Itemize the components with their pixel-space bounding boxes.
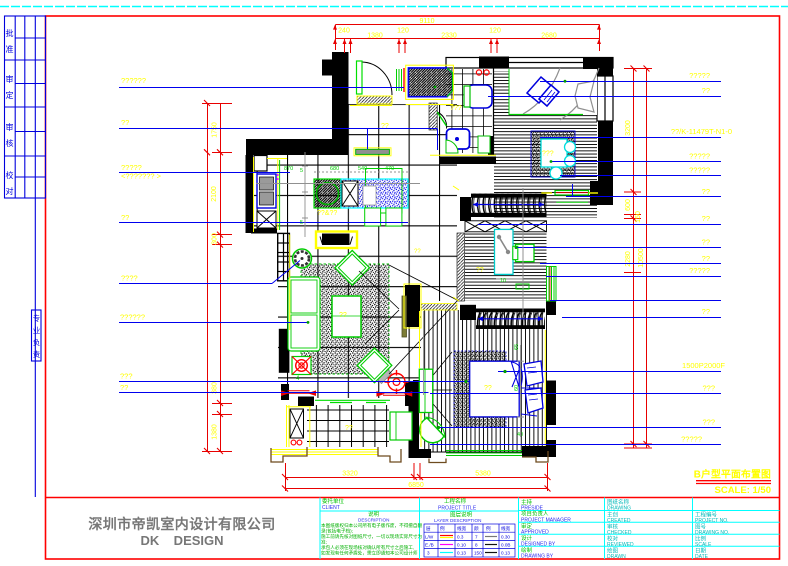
svg-text:E./B: E./B [425,543,434,548]
svg-text:???: ??? [450,105,462,112]
svg-text:5380: 5380 [475,471,491,478]
svg-text:2100: 2100 [211,186,218,202]
svg-text:CHECKED: CHECKED [607,530,632,536]
svg-text:0.30: 0.30 [501,535,510,540]
svg-text:委托单位: 委托单位 [322,497,345,505]
svg-text:例: 例 [486,525,491,532]
svg-text:准: 准 [6,44,14,54]
svg-text:5: 5 [300,168,303,174]
svg-text:540: 540 [358,166,367,172]
svg-text:10500: 10500 [638,248,645,268]
svg-text:??: ?? [702,86,710,95]
svg-text:1750: 1750 [212,122,219,138]
svg-text:??: ?? [121,213,129,222]
svg-text:680: 680 [330,166,339,172]
svg-text:??: ?? [414,249,421,255]
svg-text:业: 业 [33,325,41,335]
svg-text:DESIGNED BY: DESIGNED BY [521,542,556,548]
svg-text:定: 定 [6,90,14,100]
svg-text:例: 例 [440,525,445,532]
svg-text:PROJECT MANAGER: PROJECT MANAGER [521,518,571,524]
svg-text:120: 120 [397,28,409,35]
svg-text:0.13: 0.13 [457,551,466,556]
svg-text:8: 8 [475,543,478,548]
svg-text:对: 对 [6,186,14,196]
svg-text:DRAWING BY: DRAWING BY [521,554,554,560]
svg-text:??: ?? [476,267,484,274]
svg-text:6850: 6850 [408,482,424,489]
svg-text:240: 240 [338,28,350,35]
svg-text:??: ?? [702,238,710,247]
svg-text:??: ?? [120,383,128,392]
svg-text:???: ??? [120,372,133,381]
svg-text:??: ?? [702,214,710,223]
svg-text:65: 65 [514,344,520,350]
svg-text:150: 150 [635,211,642,223]
svg-text:LAYER DESCRIPTION: LAYER DESCRIPTION [434,518,481,523]
svg-text:120: 120 [489,28,501,35]
svg-text:专: 专 [33,313,41,323]
svg-text:60: 60 [514,385,520,391]
svg-text:??: ?? [121,118,129,127]
svg-text:??/K-11479T-N1-0: ??/K-11479T-N1-0 [671,127,732,136]
svg-text:项目负责人: 项目负责人 [521,510,549,518]
svg-text:审: 审 [6,74,14,84]
svg-text:工程名称: 工程名称 [444,497,467,505]
svg-text:2680: 2680 [541,33,557,40]
svg-text:线宽: 线宽 [457,525,467,532]
svg-text:?????: ????? [689,266,710,275]
svg-text:150: 150 [474,551,482,556]
svg-text:0.13: 0.13 [501,551,510,556]
svg-text:0.0B: 0.0B [501,543,510,548]
svg-text:??: ?? [345,425,353,432]
svg-text:600: 600 [625,199,632,211]
svg-text:批: 批 [6,28,14,38]
svg-text:DRAWING NO.: DRAWING NO. [695,530,729,536]
svg-text:???: ??? [702,384,715,393]
svg-text:DESCRIPTION: DESCRIPTION [358,518,389,523]
svg-text:9110: 9110 [419,18,434,25]
svg-text:PROJECT TITLE: PROJECT TITLE [438,506,477,512]
svg-text:责: 责 [33,349,41,359]
svg-text:SCALE: SCALE [695,542,712,548]
svg-text:3320: 3320 [342,471,358,478]
svg-text:??&??: ??&?? [317,210,337,217]
svg-text:审: 审 [6,122,14,132]
svg-text:3: 3 [427,551,430,556]
svg-text:??: ?? [702,187,710,196]
svg-text:7: 7 [475,535,478,540]
svg-text:DRAWING: DRAWING [607,506,631,512]
svg-text:DK DESIGN: DK DESIGN [140,533,223,548]
svg-text:0.10: 0.10 [457,543,466,548]
svg-text:??: ?? [702,254,710,263]
svg-text:????: ???? [121,274,138,283]
svg-text:颜: 颜 [474,525,479,532]
svg-text:?????: ????? [689,152,710,161]
svg-text:核: 核 [6,138,14,148]
svg-text:1380: 1380 [212,424,219,440]
svg-text:如发现有任何矛盾处，需立即通知本公司设计师: 如发现有任何矛盾处，需立即通知本公司设计师 [321,550,418,557]
svg-text:10: 10 [500,278,506,284]
svg-text:?????: ????? [689,71,710,80]
svg-text:???: ??? [542,151,554,158]
svg-text:2330: 2330 [441,33,457,40]
svg-text:??????: ?????? [121,76,146,85]
svg-text:300: 300 [212,233,219,245]
svg-text:3200: 3200 [625,120,632,136]
svg-text:B户型平面布置图: B户型平面布置图 [694,468,771,481]
svg-text:2280: 2280 [625,251,632,267]
svg-text:??: ?? [339,312,347,319]
svg-text:<??????? >: <??????? > [121,172,162,181]
svg-text:??????: ?????? [120,312,145,321]
svg-text:???: ??? [702,418,715,427]
svg-text:?????: ????? [689,166,710,175]
svg-text:DRAWN: DRAWN [607,554,626,560]
svg-text:深圳市帝凯室内设计有限公司: 深圳市帝凯室内设计有限公司 [88,516,275,532]
svg-text:1500P2000F: 1500P2000F [682,361,725,370]
svg-text:5: 5 [300,220,303,226]
svg-text:校: 校 [6,170,14,180]
svg-text:CLIENT: CLIENT [322,505,340,511]
svg-text:负: 负 [33,337,41,347]
svg-text:?????: ????? [681,435,702,444]
svg-text:??: ?? [484,385,492,392]
svg-text:1380: 1380 [367,33,383,40]
svg-text:APPROVED: APPROVED [521,530,549,536]
svg-text:??: ?? [702,307,710,316]
svg-text:470: 470 [385,166,394,172]
svg-text:DATE: DATE [695,554,709,560]
svg-text:0.3: 0.3 [457,535,464,540]
svg-text:L/W: L/W [425,535,434,540]
svg-text:CREATED: CREATED [607,518,631,524]
svg-text:SCALE: 1/50: SCALE: 1/50 [715,485,772,496]
svg-text:870: 870 [284,166,293,172]
svg-text:PROJECT NO.: PROJECT NO. [695,518,729,524]
svg-text:REVIEWED: REVIEWED [607,542,634,548]
svg-text:施工前请先核对图纸尺寸，一切以现场实际尺寸为: 施工前请先核对图纸尺寸，一切以现场实际尺寸为 [321,533,422,540]
svg-text:线宽: 线宽 [501,525,511,532]
svg-text:??: ?? [381,123,389,130]
